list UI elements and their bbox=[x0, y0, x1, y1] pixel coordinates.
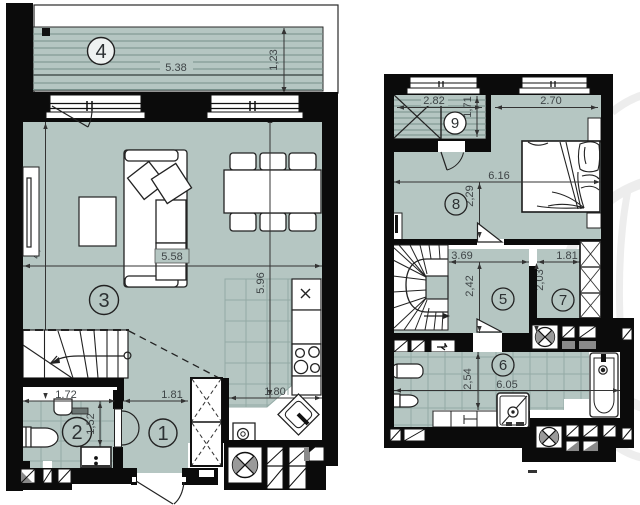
svg-text:2,42: 2,42 bbox=[464, 275, 476, 296]
svg-text:3.69: 3.69 bbox=[451, 250, 472, 262]
svg-text:7: 7 bbox=[559, 292, 567, 309]
svg-text:3: 3 bbox=[98, 290, 109, 312]
svg-text:5.58: 5.58 bbox=[161, 251, 182, 263]
svg-text:6.16: 6.16 bbox=[488, 170, 509, 182]
svg-text:1.81: 1.81 bbox=[556, 250, 577, 262]
svg-text:1.81: 1.81 bbox=[161, 389, 182, 401]
svg-text:6.05: 6.05 bbox=[496, 379, 517, 391]
svg-text:1.80: 1.80 bbox=[264, 386, 285, 398]
svg-text:5.96: 5.96 bbox=[255, 272, 267, 293]
svg-text:5: 5 bbox=[499, 291, 507, 308]
svg-text:6: 6 bbox=[499, 357, 507, 374]
svg-text:2.82: 2.82 bbox=[423, 95, 444, 107]
svg-text:4: 4 bbox=[95, 41, 106, 63]
svg-text:1,52: 1,52 bbox=[85, 413, 97, 434]
svg-text:5.38: 5.38 bbox=[165, 62, 186, 74]
svg-text:1.72: 1.72 bbox=[55, 389, 76, 401]
svg-text:2.70: 2.70 bbox=[540, 95, 561, 107]
svg-text:2: 2 bbox=[71, 422, 82, 444]
svg-text:9: 9 bbox=[451, 115, 459, 132]
svg-text:1,23: 1,23 bbox=[268, 49, 280, 70]
svg-text:1: 1 bbox=[157, 423, 168, 445]
svg-text:1,71: 1,71 bbox=[462, 96, 474, 117]
svg-text:8: 8 bbox=[452, 196, 460, 213]
svg-text:2,54: 2,54 bbox=[462, 368, 474, 389]
